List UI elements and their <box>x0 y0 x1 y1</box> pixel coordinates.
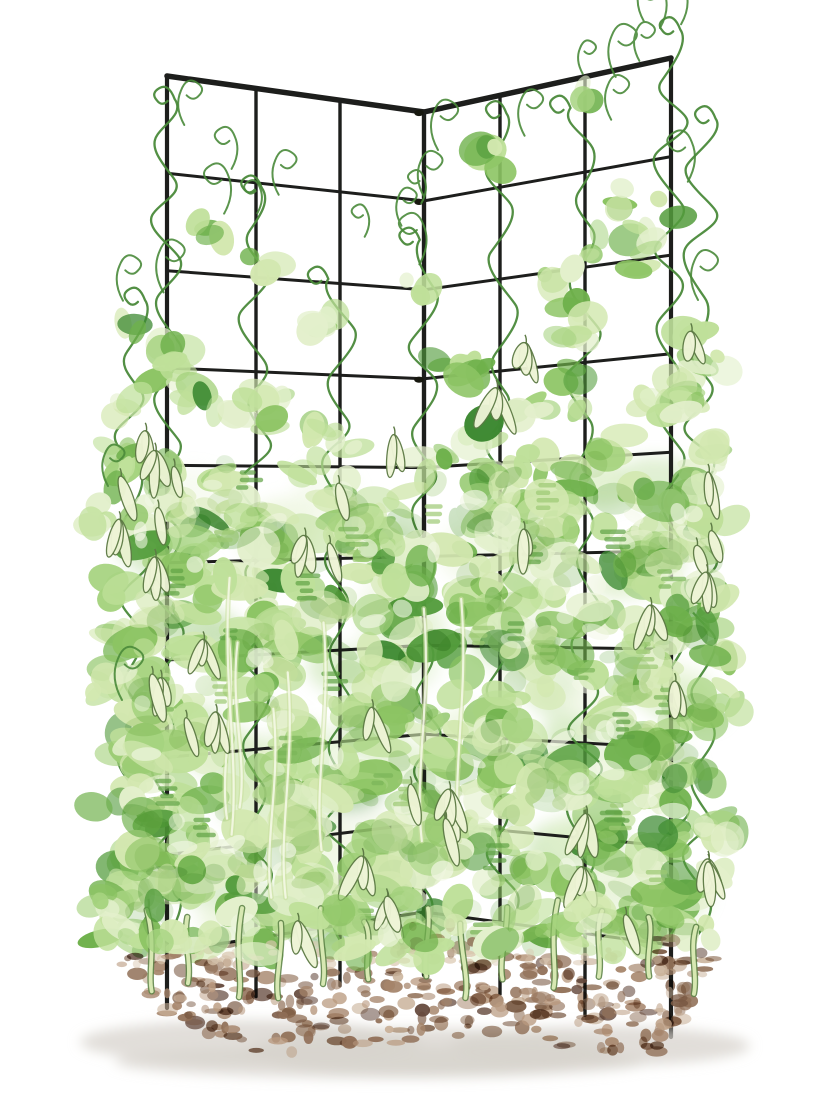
illustration-canvas <box>0 0 840 1120</box>
corner-pea-trellis-illustration <box>0 0 840 1120</box>
